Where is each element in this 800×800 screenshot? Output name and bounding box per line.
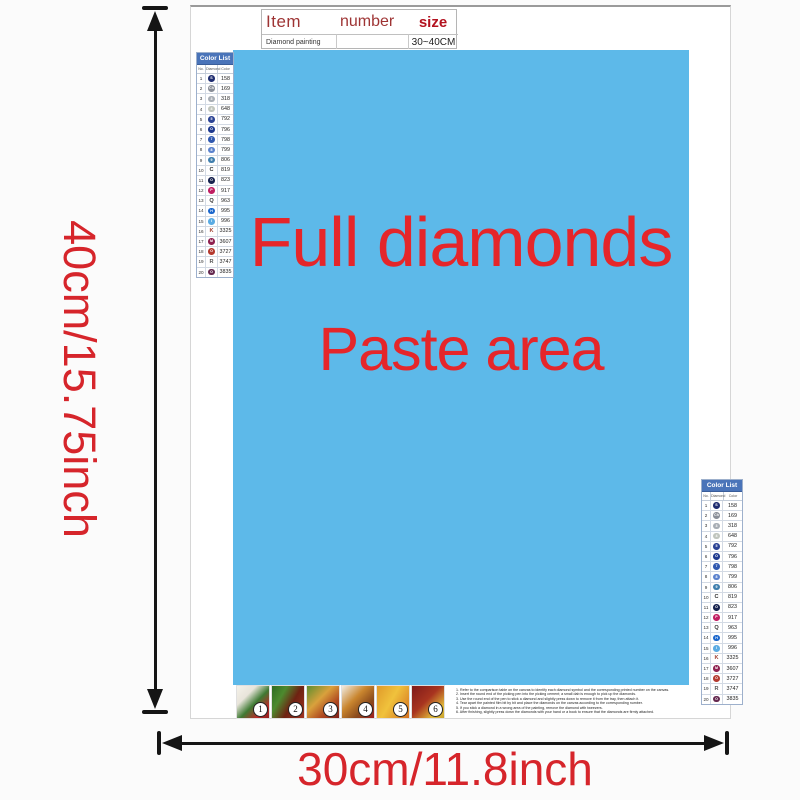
diamond-symbol: 3 [206,94,218,103]
dmc-color-code: 823 [218,177,233,183]
row-number: 18 [197,247,206,256]
row-number: 5 [197,115,206,124]
column-no: No. [702,492,711,500]
color-list-row: 14H995 [702,633,742,643]
dmc-color-code: 995 [218,208,233,214]
diamond-symbol-dot: 3 [208,96,215,103]
diamond-symbol-dot: O [208,248,215,255]
row-number: 14 [197,206,206,215]
preview-thumbnail: 1 [236,685,270,719]
diamond-symbol-dot: 8 [713,574,720,581]
arrowhead-right-icon [704,735,724,751]
table-header-item: Item [262,10,336,34]
row-number: 5 [702,542,711,551]
diamond-symbol: 5 [711,542,723,551]
color-list-row: 6O796 [197,125,233,135]
row-number: 12 [197,186,206,195]
dmc-color-code: 169 [218,86,233,92]
color-list-row: 14H995 [197,206,233,216]
diamond-symbol: 3 [711,521,723,530]
color-list-rows: 1S1582Ch1693331844648557926O796777988879… [702,501,742,704]
arrow-vertical-line [154,31,157,689]
diamond-symbol-dot: O [208,177,215,184]
thumbnail-number-badge: 4 [358,702,373,717]
dmc-color-code: 3835 [723,696,742,702]
dmc-color-code: 792 [723,543,742,549]
dmc-color-code: 963 [723,625,742,631]
preview-thumbnail: 6 [411,685,445,719]
diamond-symbol: R [206,257,218,266]
dmc-color-code: 169 [723,513,742,519]
color-list-row: 55792 [702,542,742,552]
dmc-color-code: 3607 [218,239,233,245]
row-number: 15 [702,644,711,653]
row-number: 17 [702,664,711,673]
color-list-row: 1S158 [702,501,742,511]
arrowhead-down-icon [147,689,163,709]
product-diagram: 40cm/15.75inch Item number size Diamond … [0,0,800,800]
row-number: 13 [197,196,206,205]
dmc-color-code: 158 [723,503,742,509]
thumbnail-number-badge: 5 [393,702,408,717]
item-info-table: Item number size Diamond painting 30~40C… [261,9,457,49]
color-list-right: Color List No. Diamond Color 1S1582Ch169… [701,479,743,705]
paste-area-title-line2: Paste area [233,319,689,380]
color-list-row: 19R3747 [702,684,742,694]
diamond-symbol: 4 [206,105,218,114]
color-list-row: 20O3835 [702,695,742,704]
color-list-row: 18O3727 [197,247,233,257]
diamond-symbol: P [206,186,218,195]
row-number: 19 [197,257,206,266]
row-number: 8 [197,145,206,154]
diamond-symbol: S [206,74,218,83]
instruction-line: 6. After finishing, slightly press down … [456,710,706,714]
diamond-symbol-dot: 7 [713,563,720,570]
paste-area-canvas: Full diamonds Paste area [233,50,689,685]
poster-sheet: Item number size Diamond painting 30~40C… [190,5,731,719]
diamond-symbol: 8 [206,145,218,154]
dmc-color-code: 3727 [218,249,233,255]
diamond-symbol: O [711,552,723,561]
color-list-title: Color List [197,53,233,65]
color-list-row: 11O823 [197,176,233,186]
thumbnail-number-badge: 1 [253,702,268,717]
row-number: 4 [197,105,206,114]
height-dimension-arrow [142,6,168,714]
diamond-symbol-dot: 8 [208,147,215,154]
color-list-row: 17M3607 [197,237,233,247]
color-list-row: 19R3747 [197,257,233,267]
diamond-symbol: R [711,684,723,693]
arrowhead-up-icon [147,11,163,31]
dmc-color-code: 917 [218,188,233,194]
color-list-row: 13Q963 [197,196,233,206]
diamond-symbol-dot: 5 [208,116,215,123]
thumbnail-number-badge: 2 [288,702,303,717]
dmc-color-code: 3747 [723,686,742,692]
dmc-color-code: 318 [218,96,233,102]
dmc-color-code: 995 [723,635,742,641]
color-list-row: 44648 [702,532,742,542]
color-list-row: 99806 [702,583,742,593]
dmc-color-code: 648 [723,533,742,539]
row-number: 10 [702,593,711,602]
dmc-color-code: 963 [218,198,233,204]
diamond-symbol-dot: 9 [713,584,720,591]
diamond-symbol: O [711,674,723,683]
color-list-row: 77798 [197,135,233,145]
dmc-color-code: 996 [218,218,233,224]
diamond-symbol: C [711,593,723,602]
preview-thumbnail: 4 [341,685,375,719]
diamond-symbol: O [206,176,218,185]
row-number: 20 [197,268,206,277]
table-cell-number [336,34,408,49]
row-number: 4 [702,532,711,541]
color-list-column-headers: No. Diamond Color [197,65,233,74]
preview-thumbnail: 3 [306,685,340,719]
diamond-symbol: 5 [206,115,218,124]
diamond-symbol-dot: S [208,75,215,82]
paste-area-title-line1: Full diamonds [233,207,689,277]
dmc-color-code: 3607 [723,666,742,672]
instruction-text-block: 1. Refer to the comparison table on the … [456,688,706,714]
diamond-symbol-dot: O [208,269,215,276]
row-number: 2 [197,84,206,93]
thumbnail-number-badge: 3 [323,702,338,717]
row-number: 1 [702,501,711,510]
color-list-left: Color List No. Diamond Color 1S1582Ch169… [196,52,234,278]
diamond-symbol: H [711,633,723,642]
column-color: Color [724,492,742,500]
color-list-row: 88799 [702,572,742,582]
diamond-symbol-dot: M [713,665,720,672]
diamond-symbol-dot: O [713,604,720,611]
color-list-row: 33318 [197,94,233,104]
diamond-symbol: O [711,695,723,704]
diamond-symbol-dot: Ch [713,512,720,519]
row-number: 10 [197,166,206,175]
row-number: 3 [702,521,711,530]
dmc-color-code: 796 [218,127,233,133]
row-number: 9 [197,156,206,165]
diamond-symbol: K [711,654,723,663]
diamond-symbol-dot: 7 [208,136,215,143]
dmc-color-code: 3747 [218,259,233,265]
dmc-color-code: 806 [218,157,233,163]
row-number: 16 [197,227,206,236]
height-dimension-label: 40cm/15.75inch [56,214,102,544]
color-list-row: 10C819 [197,166,233,176]
diamond-symbol-dot: Ch [208,85,215,92]
color-list-row: 2Ch169 [702,511,742,521]
row-number: 11 [702,603,711,612]
color-list-row: 33318 [702,521,742,531]
column-color: Color [218,65,233,73]
diamond-symbol-dot: P [713,614,720,621]
dmc-color-code: 823 [723,604,742,610]
dmc-color-code: 3325 [723,655,742,661]
color-list-row: 1S158 [197,74,233,84]
row-number: 13 [702,623,711,632]
row-number: 6 [197,125,206,134]
diamond-symbol: O [206,125,218,134]
color-list-row: 6O796 [702,552,742,562]
diamond-symbol: 4 [711,532,723,541]
dmc-color-code: 917 [723,615,742,621]
arrow-left-cap [157,731,161,755]
diamond-symbol-dot: H [208,208,215,215]
dmc-color-code: 996 [723,645,742,651]
diamond-symbol: H [206,206,218,215]
diamond-symbol: O [206,247,218,256]
diamond-symbol-dot: O [208,126,215,133]
color-list-row: 11O823 [702,603,742,613]
diamond-symbol: 9 [711,583,723,592]
table-cell-item: Diamond painting [262,34,336,49]
color-list-row: 2Ch169 [197,84,233,94]
column-diamond: Diamond [711,492,724,500]
dmc-color-code: 799 [218,147,233,153]
dmc-color-code: 819 [723,594,742,600]
arrow-right-cap [725,731,729,755]
thumbnail-number-badge: 6 [428,702,443,717]
diamond-symbol: O [711,603,723,612]
diamond-symbol: S [711,501,723,510]
diamond-symbol: C [206,166,218,175]
diamond-symbol: I [711,644,723,653]
diamond-symbol: M [711,664,723,673]
row-number: 6 [702,552,711,561]
dmc-color-code: 3835 [218,269,233,275]
row-number: 7 [197,135,206,144]
diamond-symbol: 7 [206,135,218,144]
diamond-symbol: 9 [206,156,218,165]
diamond-symbol-dot: P [208,187,215,194]
diamond-symbol: Ch [206,84,218,93]
diamond-symbol-dot: M [208,238,215,245]
row-number: 11 [197,176,206,185]
diamond-symbol: I [206,217,218,226]
dmc-color-code: 798 [218,137,233,143]
diamond-symbol: 7 [711,562,723,571]
color-list-row: 16K3325 [197,227,233,237]
color-list-row: 18O3727 [702,674,742,684]
dmc-color-code: 796 [723,554,742,560]
color-list-row: 17M3607 [702,664,742,674]
table-header-number: number [336,10,408,34]
arrowhead-left-icon [162,735,182,751]
table-cell-size: 30~40CM [408,34,458,49]
row-number: 12 [702,613,711,622]
color-list-row: 99806 [197,156,233,166]
column-diamond: Diamond [206,65,218,73]
row-number: 16 [702,654,711,663]
color-list-row: 44648 [197,105,233,115]
row-number: 14 [702,633,711,642]
row-number: 15 [197,217,206,226]
dmc-color-code: 806 [723,584,742,590]
diamond-symbol-dot: S [713,502,720,509]
table-header-size: size [408,10,458,34]
diamond-symbol-dot: I [208,218,215,225]
dmc-color-code: 3325 [218,228,233,234]
dmc-color-code: 158 [218,76,233,82]
diamond-symbol-dot: I [713,645,720,652]
diamond-symbol-dot: O [713,696,720,703]
diamond-symbol: Ch [711,511,723,520]
diamond-symbol: M [206,237,218,246]
column-no: No. [197,65,206,73]
color-list-title: Color List [702,480,742,492]
diamond-symbol-dot: H [713,635,720,642]
row-number: 7 [702,562,711,571]
row-number: 17 [197,237,206,246]
color-list-row: 12P917 [197,186,233,196]
color-list-row: 15I996 [702,644,742,654]
dmc-color-code: 318 [723,523,742,529]
color-list-row: 12P917 [702,613,742,623]
dmc-color-code: 799 [723,574,742,580]
diamond-symbol: K [206,227,218,236]
dmc-color-code: 819 [218,167,233,173]
diamond-symbol-dot: 9 [208,157,215,164]
diamond-symbol-dot: 4 [713,533,720,540]
arrow-top-cap [142,6,168,10]
row-number: 3 [197,94,206,103]
diamond-symbol: 8 [711,572,723,581]
row-number: 2 [702,511,711,520]
diamond-symbol: Q [206,196,218,205]
diamond-symbol-dot: O [713,553,720,560]
diamond-symbol: Q [711,623,723,632]
color-list-row: 77798 [702,562,742,572]
dmc-color-code: 798 [723,564,742,570]
width-dimension-label: 30cm/11.8inch [220,744,670,794]
color-list-row: 20O3835 [197,268,233,277]
color-list-column-headers: No. Diamond Color [702,492,742,501]
row-number: 8 [702,572,711,581]
color-list-row: 16K3325 [702,654,742,664]
diamond-symbol-dot: 3 [713,523,720,530]
color-list-row: 13Q963 [702,623,742,633]
preview-thumbnail: 5 [376,685,410,719]
color-list-row: 10C819 [702,593,742,603]
row-number: 18 [702,674,711,683]
arrow-bottom-cap [142,710,168,714]
dmc-color-code: 648 [218,106,233,112]
color-list-rows: 1S1582Ch1693331844648557926O796777988879… [197,74,233,277]
preview-thumbnail: 2 [271,685,305,719]
row-number: 9 [702,583,711,592]
dmc-color-code: 3727 [723,676,742,682]
diamond-symbol: O [206,268,218,277]
color-list-row: 55792 [197,115,233,125]
dmc-color-code: 792 [218,116,233,122]
color-list-row: 88799 [197,145,233,155]
diamond-symbol: P [711,613,723,622]
diamond-symbol-dot: 5 [713,543,720,550]
step-thumbnails: 123456 [236,685,445,719]
diamond-symbol-dot: 4 [208,106,215,113]
color-list-row: 15I996 [197,217,233,227]
row-number: 1 [197,74,206,83]
diamond-symbol-dot: O [713,675,720,682]
